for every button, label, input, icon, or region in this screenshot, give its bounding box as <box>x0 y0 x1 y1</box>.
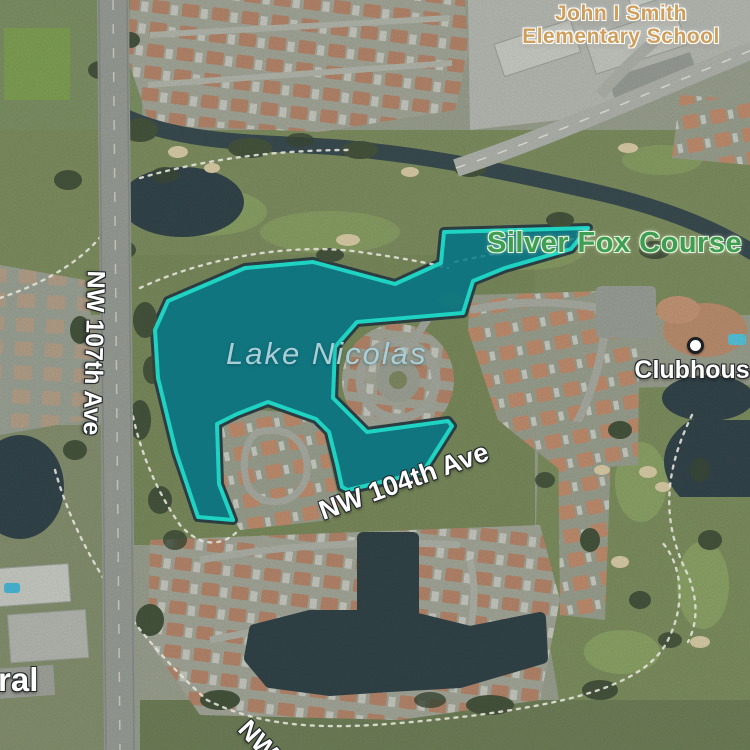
school-label: John I Smith Elementary School <box>522 2 720 48</box>
satellite-map[interactable]: John I Smith Elementary School Silver Fo… <box>0 0 750 750</box>
edge-label-partial: ral <box>0 662 38 698</box>
clubhouse-poi-dot[interactable] <box>687 337 704 354</box>
clubhouse-label: Clubhouse <box>634 357 750 385</box>
school-label-line2: Elementary School <box>522 25 720 48</box>
golf-course-label: Silver Fox Course <box>487 228 742 260</box>
lake-name-label: Lake Nicolas <box>226 337 427 371</box>
street-label-nw-107th-ave: NW 107th Ave <box>77 270 109 436</box>
school-label-line1: John I Smith <box>522 2 720 25</box>
